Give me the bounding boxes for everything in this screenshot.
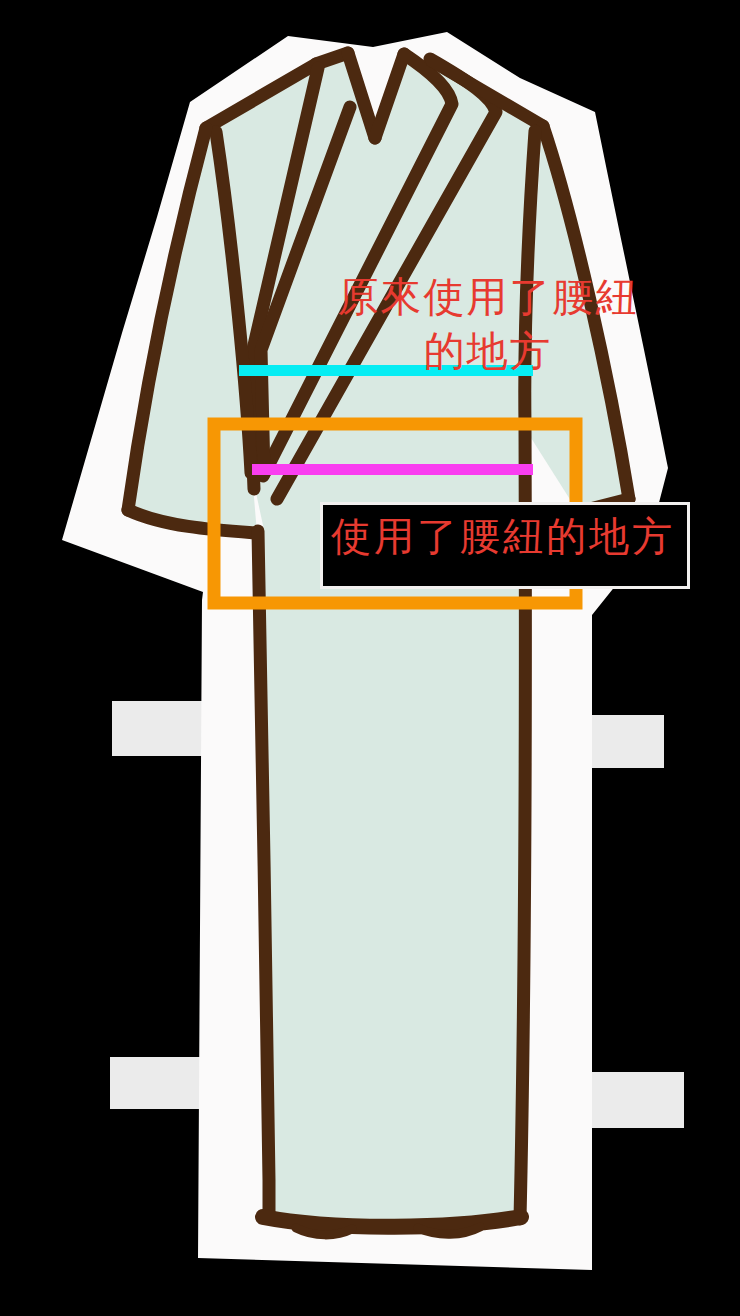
label-current-text: 使用了腰紐的地方 (331, 513, 675, 559)
label-current-spot-box: 使用了腰紐的地方 (320, 502, 690, 589)
tab-left-lower (110, 1057, 207, 1109)
current-waist-cord-line (252, 464, 533, 475)
kimono-illustration (0, 0, 740, 1316)
label-original-spot: 原來使用了腰紐 的地方 (312, 270, 664, 378)
tab-right-lower (583, 1072, 684, 1128)
tab-left-upper (112, 701, 208, 756)
label-original-line1: 原來使用了腰紐 (312, 270, 664, 324)
illustration-canvas: 原來使用了腰紐 的地方 使用了腰紐的地方 (0, 0, 740, 1316)
label-original-line2: 的地方 (312, 324, 664, 378)
